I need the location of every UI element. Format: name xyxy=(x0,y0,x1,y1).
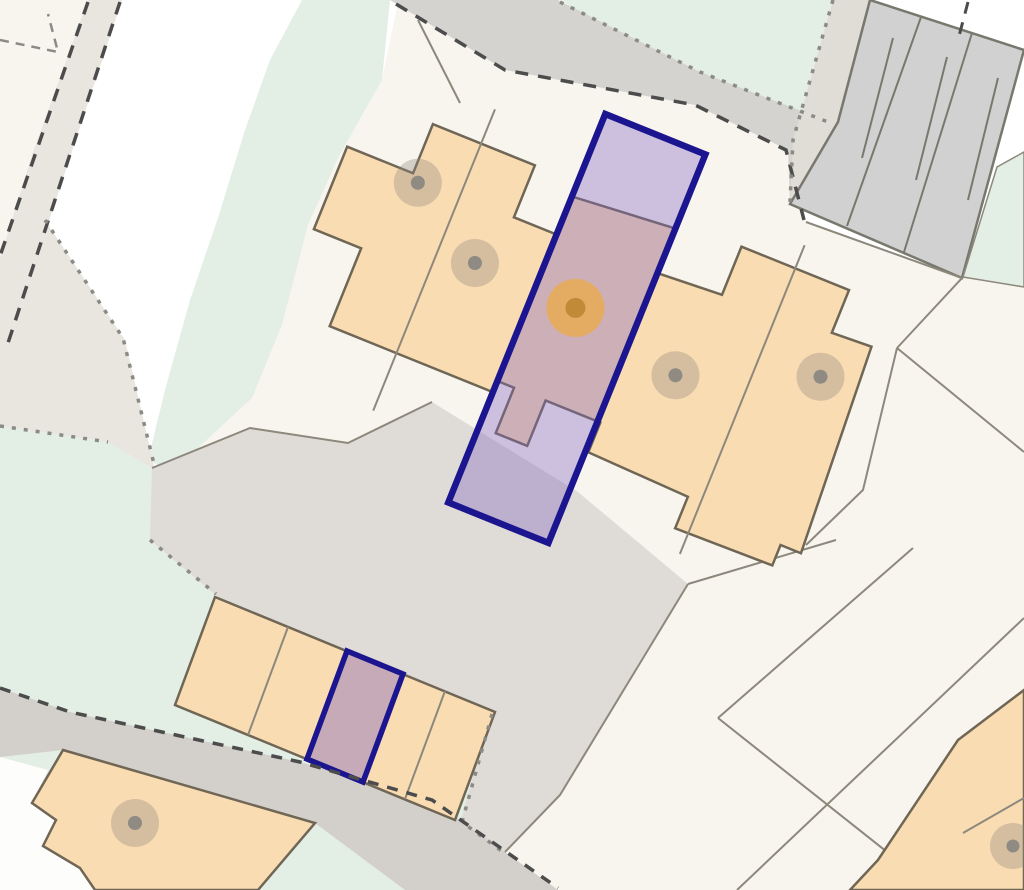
building-marker-bottom-right-dot xyxy=(1007,840,1020,853)
building-marker-bottom-left-dot xyxy=(128,816,142,830)
map-view[interactable] xyxy=(0,0,1024,890)
plot-map-canvas[interactable] xyxy=(0,0,1024,890)
